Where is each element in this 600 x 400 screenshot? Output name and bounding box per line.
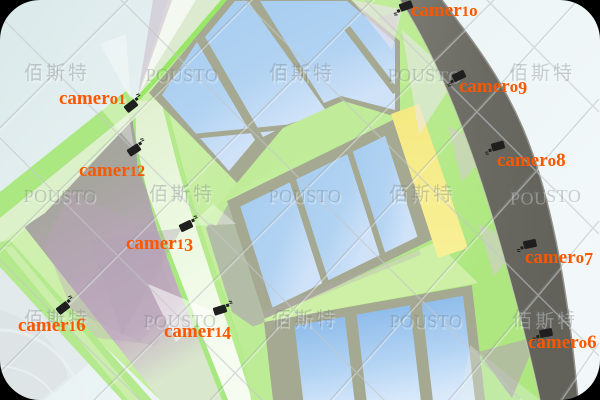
svg-text:POUSTO: POUSTO <box>388 65 461 85</box>
svg-text:camero6: camero6 <box>528 332 597 353</box>
svg-text:camer14: camer14 <box>164 321 231 343</box>
svg-text:POUSTO: POUSTO <box>24 186 97 206</box>
svg-text:POUSTO: POUSTO <box>269 186 342 206</box>
svg-text:camer1o: camer1o <box>411 0 478 21</box>
svg-text:佰斯特: 佰斯特 <box>389 183 455 205</box>
svg-text:佰斯特: 佰斯特 <box>24 62 90 84</box>
svg-text:camero8: camero8 <box>497 150 566 171</box>
svg-text:camer12: camer12 <box>79 160 145 181</box>
svg-text:camer13: camer13 <box>126 233 193 255</box>
svg-text:佰斯特: 佰斯特 <box>272 308 338 330</box>
svg-text:POUSTO: POUSTO <box>509 186 582 206</box>
svg-text:camero7: camero7 <box>525 247 593 269</box>
svg-text:佰斯特: 佰斯特 <box>269 62 335 84</box>
svg-text:POUSTO: POUSTO <box>146 65 219 85</box>
svg-text:camero9: camero9 <box>459 76 527 98</box>
svg-text:camer16: camer16 <box>18 315 86 336</box>
svg-text:佰斯特: 佰斯特 <box>149 183 215 205</box>
svg-text:camero1: camero1 <box>59 88 126 109</box>
svg-text:POUSTO: POUSTO <box>390 311 463 331</box>
svg-text:佰斯特: 佰斯特 <box>512 308 578 330</box>
